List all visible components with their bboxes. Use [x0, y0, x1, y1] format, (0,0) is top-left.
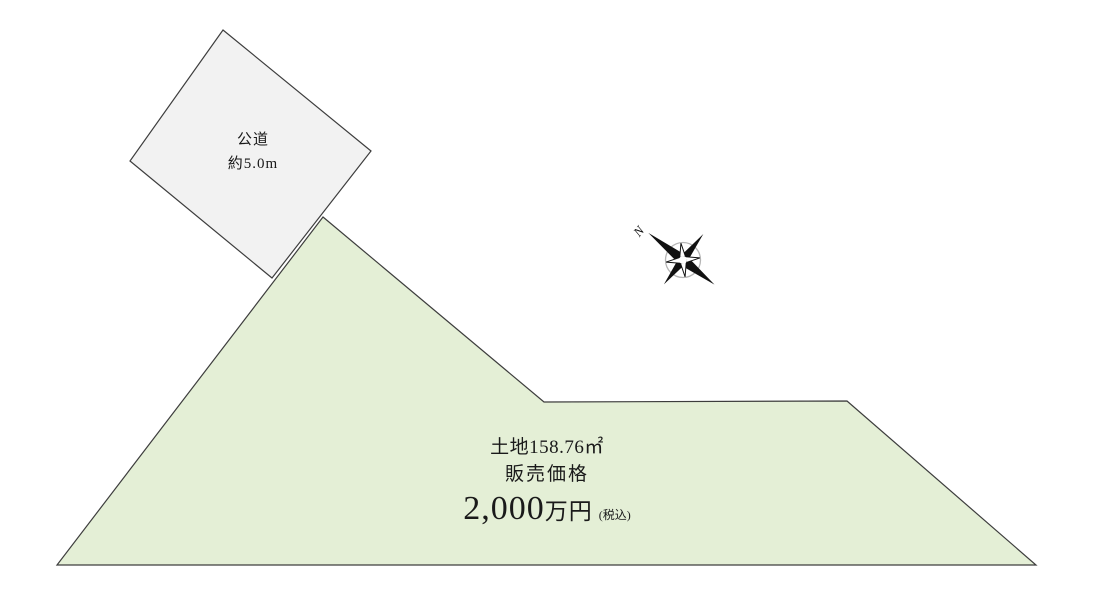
price-caption: 販売価格 — [397, 463, 697, 487]
price-tax-note: (税込) — [599, 506, 631, 523]
price-amount: 2,000 — [463, 492, 545, 526]
land-area-text: 土地158.76㎡ — [397, 436, 697, 460]
land-label: 土地158.76㎡ 販売価格 2,000 万円 (税込) — [397, 436, 697, 526]
compass-north-label: N — [629, 222, 648, 240]
road-name: 公道 — [183, 128, 323, 152]
road-label: 公道 約5.0m — [183, 128, 323, 176]
compass-rose — [629, 207, 735, 309]
road-width: 約5.0m — [183, 152, 323, 176]
price-row: 2,000 万円 (税込) — [397, 492, 697, 526]
site-plan-diagram: N 公道 約5.0m 土地158.76㎡ 販売価格 2,000 万円 (税込) — [0, 0, 1096, 594]
price-unit: 万円 — [545, 492, 593, 526]
